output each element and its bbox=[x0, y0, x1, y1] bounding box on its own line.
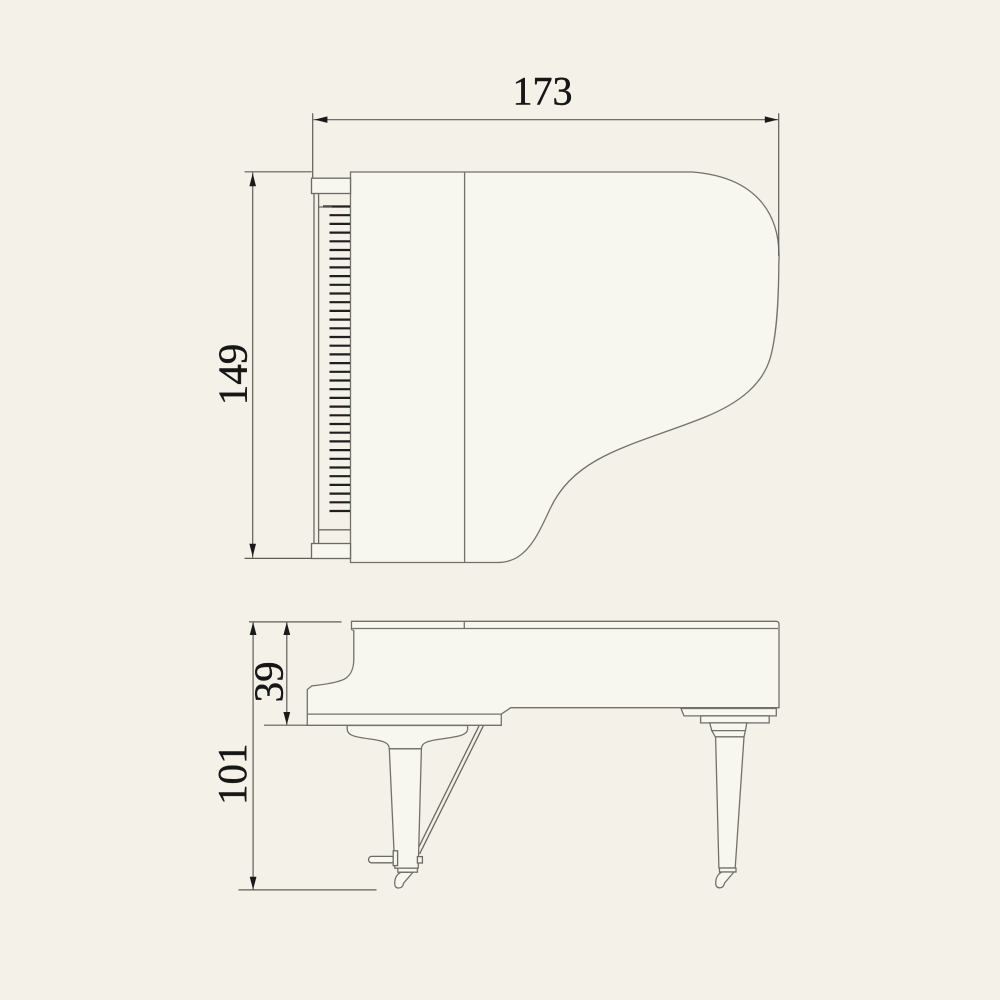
svg-text:101: 101 bbox=[209, 743, 255, 805]
svg-text:149: 149 bbox=[210, 344, 256, 406]
svg-text:173: 173 bbox=[513, 69, 573, 114]
